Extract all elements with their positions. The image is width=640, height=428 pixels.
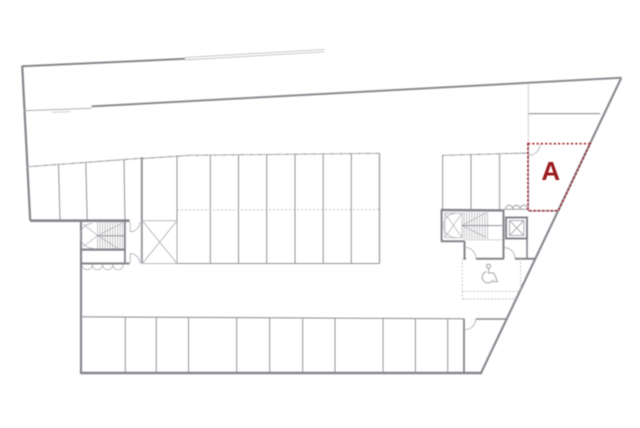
svg-text:A: A (541, 156, 560, 186)
